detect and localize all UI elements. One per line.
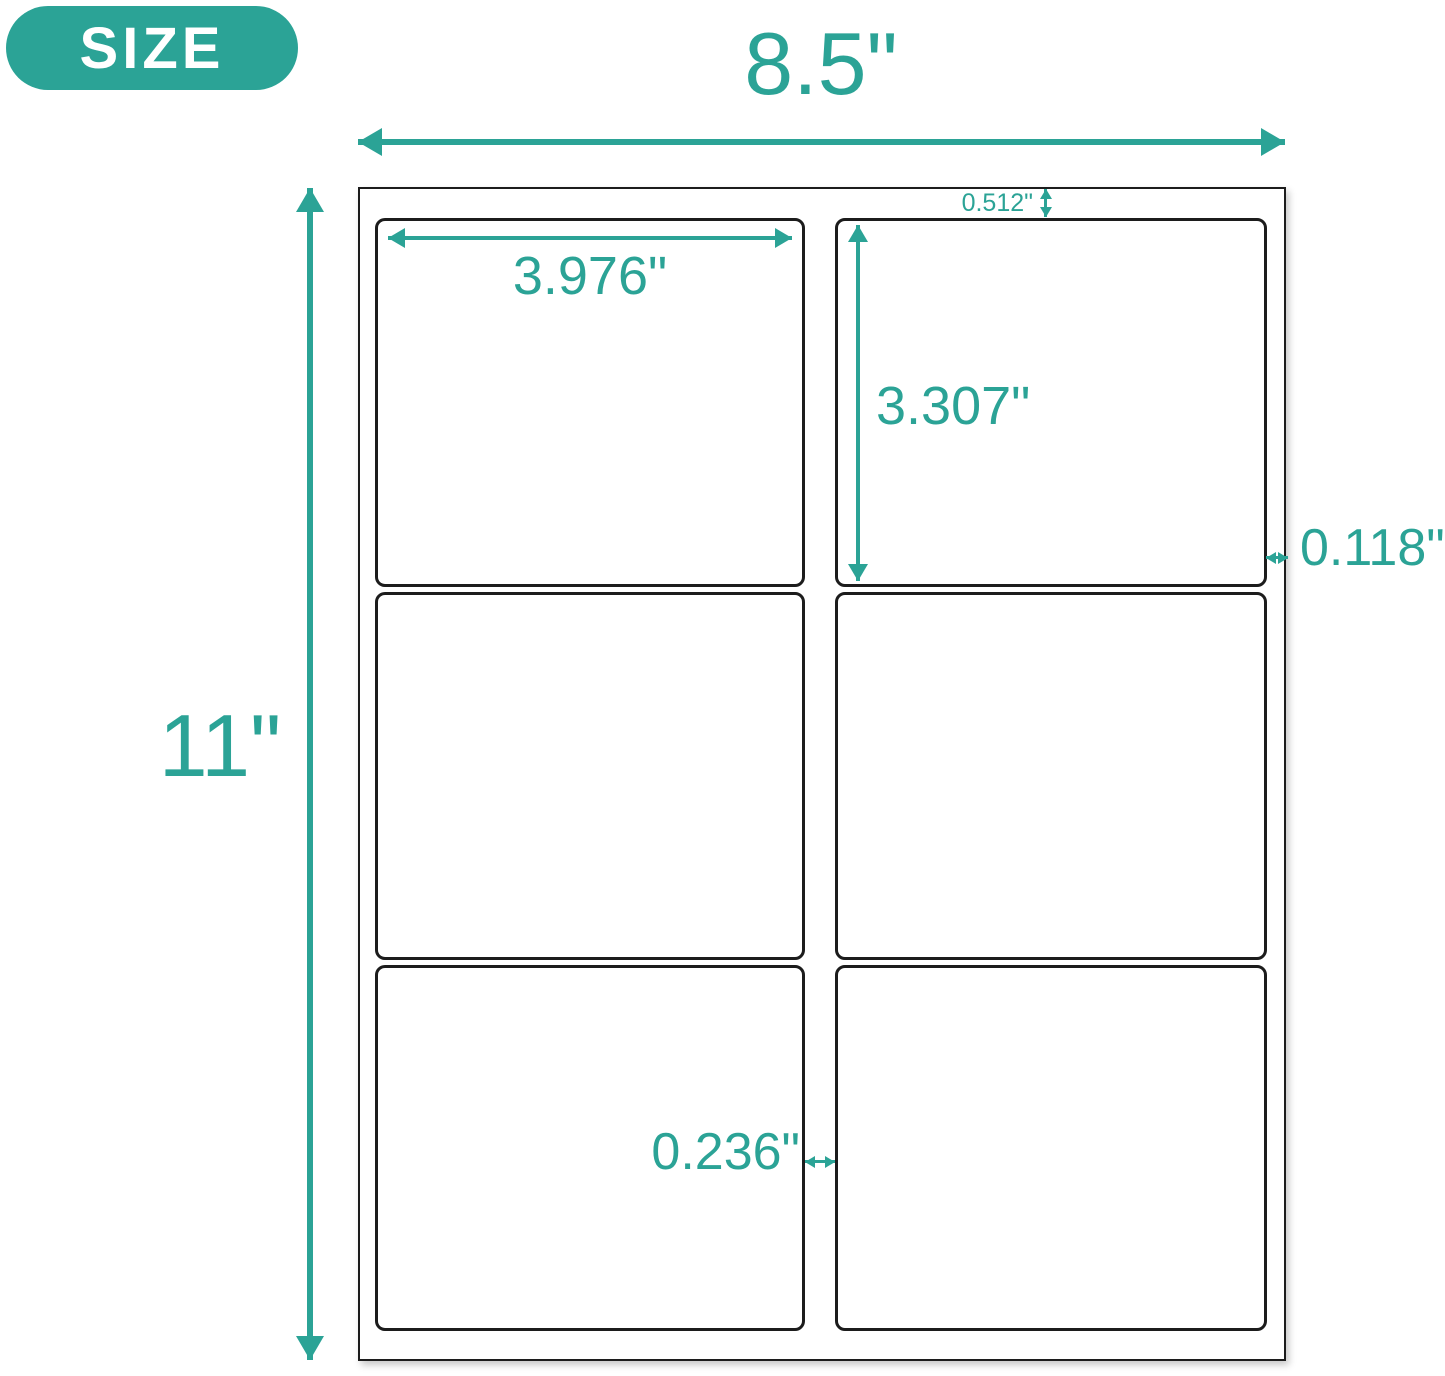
label-cell bbox=[375, 592, 805, 960]
sheet-height-arrow-icon bbox=[307, 188, 313, 1360]
label-cell: 3.976" bbox=[375, 218, 805, 587]
sheet-width-arrow-icon bbox=[358, 139, 1285, 145]
label-sheet: 3.976" 3.307" bbox=[358, 187, 1286, 1361]
side-margin-value: 0.118" bbox=[1300, 522, 1445, 574]
size-badge: SIZE bbox=[6, 6, 298, 90]
sheet-height-value: 11" bbox=[140, 702, 300, 790]
top-margin-arrow-icon bbox=[1044, 189, 1047, 217]
label-width-arrow-icon bbox=[388, 236, 792, 240]
side-margin-arrow-icon bbox=[1266, 556, 1288, 559]
label-height-arrow-icon bbox=[856, 225, 860, 581]
column-gap-value: 0.236" bbox=[650, 1126, 800, 1178]
label-cell bbox=[835, 592, 1267, 960]
size-diagram-page: SIZE 8.5" 11" 3.976" 3.307" 0.512" 0.118… bbox=[0, 0, 1445, 1376]
label-width-value: 3.976" bbox=[378, 249, 802, 303]
label-height-value: 3.307" bbox=[876, 379, 1030, 433]
size-badge-label: SIZE bbox=[80, 15, 225, 82]
top-margin-value: 0.512" bbox=[885, 191, 1033, 216]
label-cell bbox=[835, 965, 1267, 1331]
column-gap-arrow-icon bbox=[805, 1160, 835, 1163]
sheet-width-value: 8.5" bbox=[671, 20, 971, 108]
label-cell: 3.307" bbox=[835, 218, 1267, 587]
